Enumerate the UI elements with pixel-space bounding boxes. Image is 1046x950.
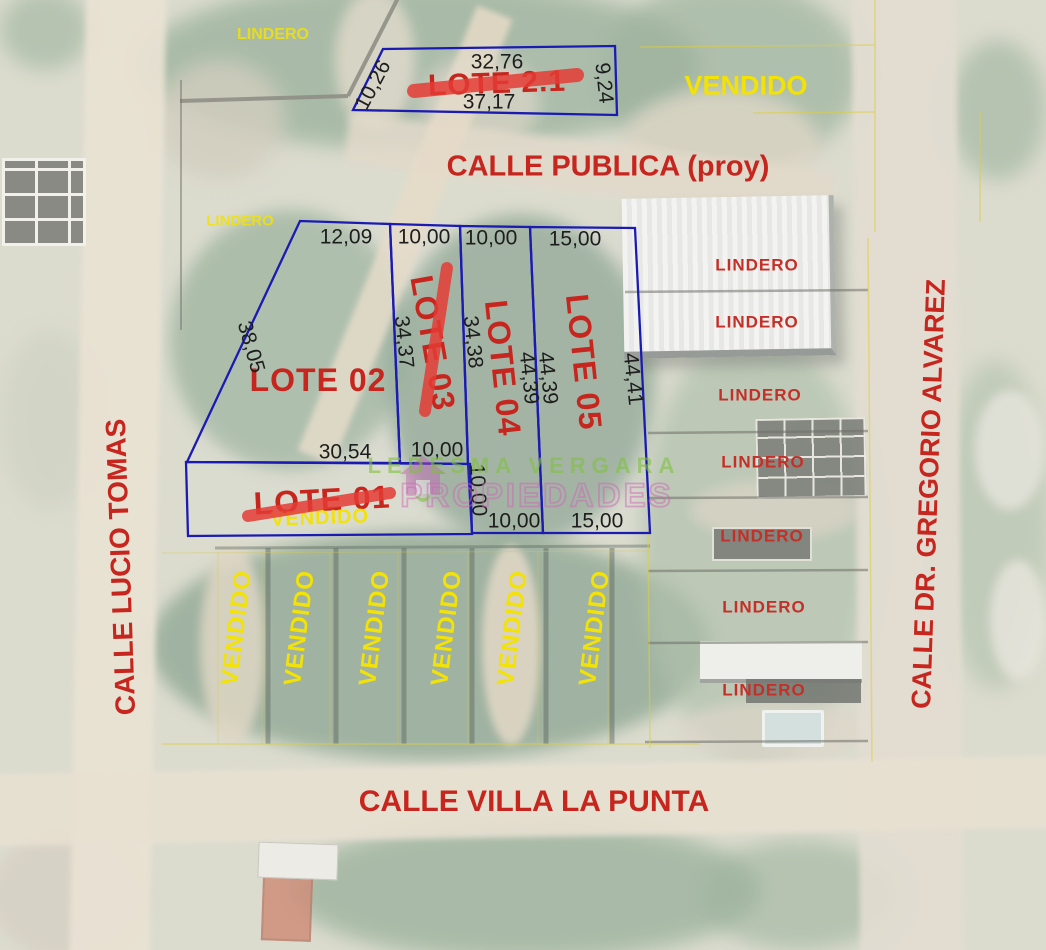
lote02-top-measure: 12,09 bbox=[320, 227, 373, 248]
watermark-line2: PROPIEDADES bbox=[400, 479, 673, 512]
lote05-left-measure: 44,39 bbox=[535, 351, 561, 405]
lote03-left-measure: 34,37 bbox=[391, 315, 417, 369]
lote03-top-measure: 10,00 bbox=[398, 227, 451, 248]
lote21-bottom-measure: 37,17 bbox=[463, 92, 516, 113]
lote04-left-measure: 34,38 bbox=[460, 315, 486, 369]
lindero-red-label: LINDERO bbox=[721, 454, 805, 471]
lindero-red-label: LINDERO bbox=[722, 682, 806, 699]
lote04-bottom-measure: 10,00 bbox=[488, 511, 541, 532]
street-calle-villa-la-punta: CALLE VILLA LA PUNTA bbox=[359, 787, 710, 817]
lindero-red-label: LINDERO bbox=[720, 528, 804, 545]
lindero-yellow-label: LINDERO bbox=[206, 214, 274, 229]
lote02-bottom-measure: 30,54 bbox=[319, 442, 372, 463]
lindero-red-label: LINDERO bbox=[715, 257, 799, 274]
lote04-top-measure: 10,00 bbox=[465, 228, 518, 249]
plat-map: CALLE PUBLICA (proy) CALLE VILLA LA PUNT… bbox=[0, 0, 1046, 950]
lindero-red-label: LINDERO bbox=[718, 387, 802, 404]
lote05-bottom-measure: 15,00 bbox=[571, 511, 624, 532]
lote21-top-measure: 32,76 bbox=[471, 52, 524, 73]
lote02-name: LOTE 02 bbox=[250, 364, 387, 396]
lote01-vendido-label: VENDIDO bbox=[271, 506, 370, 529]
lindero-red-label: LINDERO bbox=[715, 314, 799, 331]
lote05-right-measure: 44,41 bbox=[620, 352, 646, 406]
vendido-top-label: VENDIDO bbox=[684, 73, 807, 100]
lindero-red-label: LINDERO bbox=[722, 599, 806, 616]
street-calle-publica: CALLE PUBLICA (proy) bbox=[447, 153, 770, 182]
lindero-yellow-label: LINDERO bbox=[237, 27, 309, 43]
watermark-line1: LEDESMA VERGARA bbox=[368, 455, 681, 477]
lote21-right-measure: 9,24 bbox=[591, 62, 616, 105]
lote05-top-measure: 15,00 bbox=[549, 229, 602, 250]
